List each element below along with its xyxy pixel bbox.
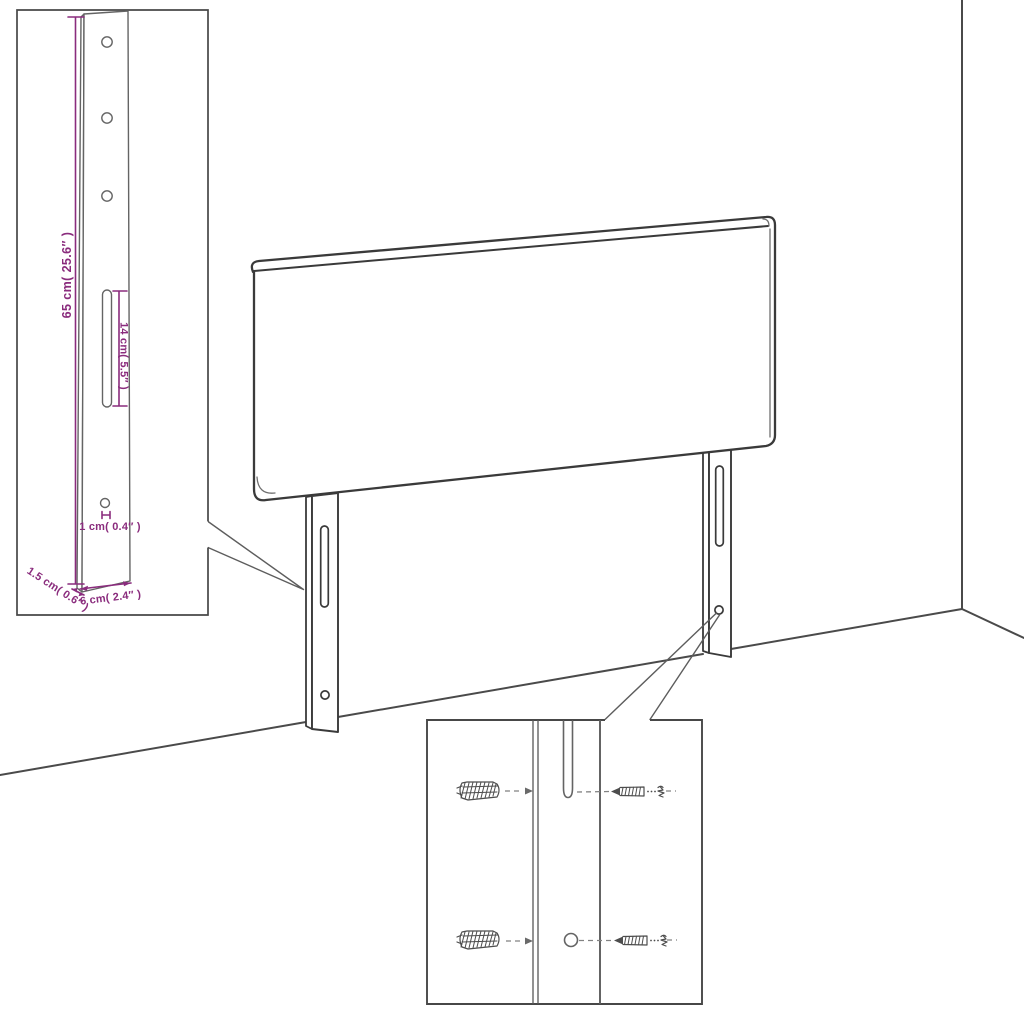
headboard-right-leg: [703, 448, 731, 657]
leg-detail-inset: 65 cm( 25.6″ ) 14 cm( 5.5″ ) 1 cm( 0.4″ …: [17, 10, 208, 615]
floor-line-right: [962, 609, 1024, 638]
leg-hole-top-2: [102, 113, 112, 123]
leg-hole-top-1: [102, 37, 112, 47]
leg-detail-drawing: [77, 11, 130, 592]
callout-leg-detail: [208, 522, 304, 590]
headboard-dimension-diagram: 65 cm( 25.6″ ) 14 cm( 5.5″ ) 1 cm( 0.4″ …: [0, 0, 1024, 1024]
leg-hole-top-3: [102, 191, 112, 201]
hole-dimension-label: 1 cm( 0.4″ ): [79, 521, 141, 533]
slot-dimension-label: 14 cm( 5.5″ ): [118, 322, 130, 390]
height-dimension-label: 65 cm( 25.6″ ): [60, 232, 74, 319]
mounting-detail-inset: [427, 720, 702, 1004]
leg-slot: [103, 290, 112, 407]
leg-hole-bottom: [101, 499, 110, 508]
headboard-left-leg: [306, 493, 338, 732]
headboard-panel: [252, 217, 775, 501]
